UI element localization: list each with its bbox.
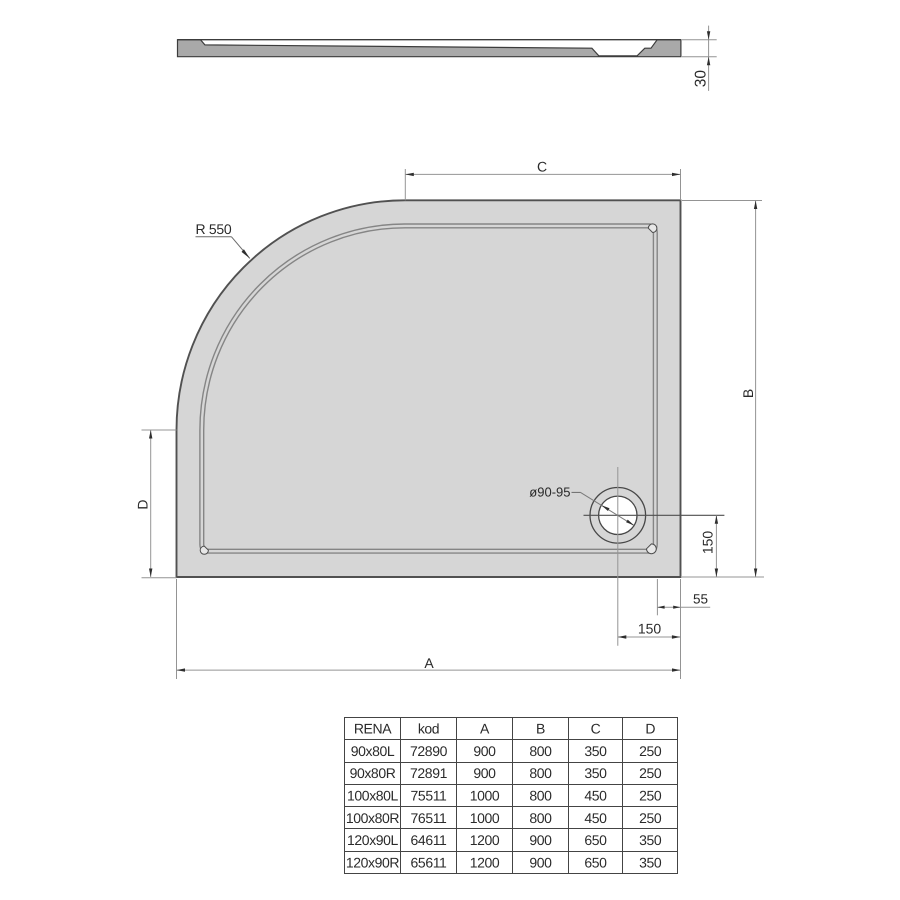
svg-text:900: 900 bbox=[529, 854, 552, 870]
svg-text:350: 350 bbox=[584, 765, 607, 781]
svg-text:900: 900 bbox=[529, 832, 552, 848]
svg-text:RENA: RENA bbox=[354, 721, 392, 737]
svg-text:120x90L: 120x90L bbox=[347, 832, 399, 848]
svg-text:55: 55 bbox=[693, 592, 708, 607]
svg-text:900: 900 bbox=[473, 765, 496, 781]
svg-text:C: C bbox=[591, 721, 601, 737]
svg-text:450: 450 bbox=[584, 788, 607, 804]
svg-text:800: 800 bbox=[529, 810, 552, 826]
svg-text:D: D bbox=[645, 721, 655, 737]
svg-text:800: 800 bbox=[529, 743, 552, 759]
svg-text:120x90R: 120x90R bbox=[346, 854, 400, 870]
svg-text:B: B bbox=[740, 389, 756, 398]
svg-text:64611: 64611 bbox=[411, 832, 448, 848]
svg-text:800: 800 bbox=[529, 788, 552, 804]
svg-text:100x80R: 100x80R bbox=[346, 810, 400, 826]
svg-text:A: A bbox=[424, 655, 434, 671]
svg-text:75511: 75511 bbox=[411, 788, 448, 804]
svg-text:72891: 72891 bbox=[410, 765, 448, 781]
svg-text:150: 150 bbox=[700, 531, 716, 555]
svg-text:90x80L: 90x80L bbox=[351, 743, 395, 759]
svg-text:250: 250 bbox=[639, 743, 662, 759]
svg-text:B: B bbox=[536, 721, 545, 737]
svg-text:350: 350 bbox=[584, 743, 607, 759]
svg-text:D: D bbox=[135, 499, 151, 509]
svg-text:30: 30 bbox=[693, 70, 710, 88]
svg-text:1000: 1000 bbox=[470, 810, 500, 826]
svg-text:350: 350 bbox=[639, 832, 662, 848]
svg-text:800: 800 bbox=[529, 765, 552, 781]
svg-text:ø90-95: ø90-95 bbox=[529, 484, 570, 499]
svg-text:90x80R: 90x80R bbox=[350, 765, 396, 781]
svg-text:kod: kod bbox=[418, 721, 439, 737]
svg-text:450: 450 bbox=[584, 810, 607, 826]
svg-text:650: 650 bbox=[584, 832, 607, 848]
svg-text:1200: 1200 bbox=[470, 832, 500, 848]
svg-text:C: C bbox=[537, 159, 547, 175]
svg-text:72890: 72890 bbox=[410, 743, 448, 759]
svg-text:100x80L: 100x80L bbox=[347, 788, 399, 804]
svg-text:A: A bbox=[480, 721, 490, 737]
svg-text:900: 900 bbox=[473, 743, 496, 759]
svg-text:250: 250 bbox=[639, 765, 662, 781]
svg-text:350: 350 bbox=[639, 854, 662, 870]
svg-text:76511: 76511 bbox=[411, 810, 448, 826]
svg-text:1200: 1200 bbox=[470, 854, 500, 870]
svg-text:650: 650 bbox=[584, 854, 607, 870]
svg-text:1000: 1000 bbox=[470, 788, 500, 804]
svg-text:R 550: R 550 bbox=[196, 221, 232, 237]
svg-text:250: 250 bbox=[639, 788, 662, 804]
svg-text:150: 150 bbox=[638, 621, 662, 637]
svg-text:250: 250 bbox=[639, 810, 662, 826]
svg-text:65611: 65611 bbox=[411, 854, 448, 870]
